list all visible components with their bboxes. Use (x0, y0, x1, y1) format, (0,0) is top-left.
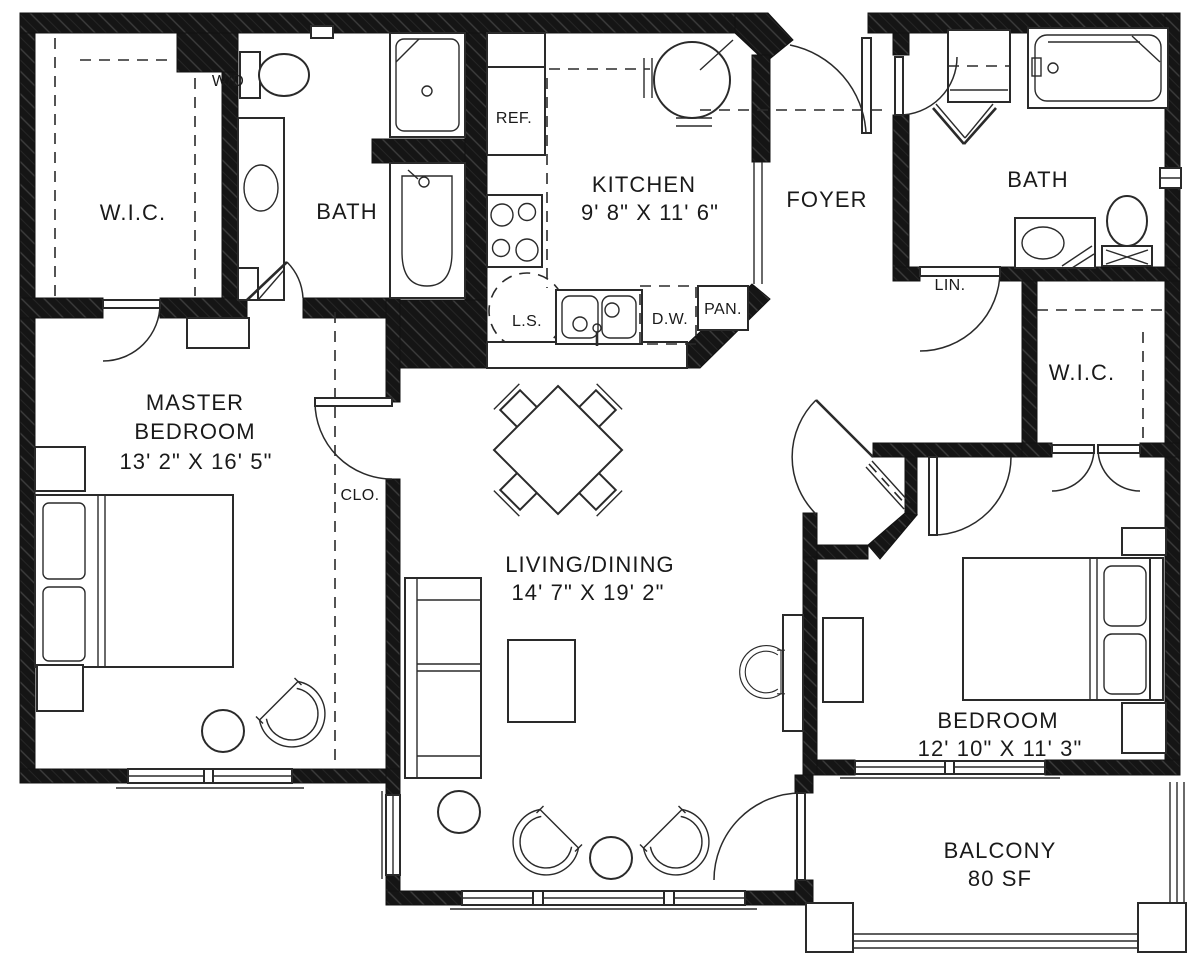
kitchen-counter-front (487, 342, 687, 368)
armchair (513, 806, 582, 875)
dining-set (494, 384, 622, 516)
washer-dryer-label: W/D (212, 73, 244, 90)
lazy-susan-circle (489, 273, 565, 349)
lazy-susan-label: L.S. (512, 313, 542, 330)
linen-label: LIN. (935, 277, 966, 294)
bedroom-dimensions: 12' 10" X 11' 3" (918, 736, 1083, 761)
armchair (256, 678, 325, 747)
sofa (405, 578, 481, 778)
accent-table (438, 791, 480, 833)
accent-table (590, 837, 632, 879)
master-bedroom-label-line2: BEDROOM (134, 419, 255, 444)
bedroom-label: BEDROOM (937, 708, 1058, 733)
living-side-window (382, 791, 400, 879)
dresser (187, 318, 249, 348)
nightstand (35, 447, 85, 491)
living-dining-furniture (405, 384, 807, 879)
balcony-pillar (806, 903, 853, 952)
floor-plan-page: W.I.C. BATH KITCHEN 9' 8" X 11' 6" FOYER… (0, 0, 1200, 965)
pantry-label: PAN. (704, 301, 742, 318)
wic-left-label: W.I.C. (100, 200, 167, 225)
bathtub-2 (1028, 28, 1168, 108)
nightstand (1122, 703, 1166, 753)
vanity-sink-2 (1015, 218, 1095, 268)
closet-label: CLO. (341, 487, 380, 504)
floor-plan-svg: W.I.C. BATH KITCHEN 9' 8" X 11' 6" FOYER… (0, 0, 1200, 965)
wic-left-door (103, 300, 160, 361)
coffee-table (508, 640, 575, 722)
refrigerator-label: REF. (496, 110, 532, 127)
master-bedroom-window (116, 769, 304, 788)
kitchen-dimensions: 9' 8" X 11' 6" (581, 200, 719, 225)
bath2-fixtures (933, 28, 1168, 268)
master-bedroom-furniture (35, 318, 325, 752)
dishwasher-label: D.W. (652, 311, 688, 328)
bath2-label: BATH (1007, 167, 1068, 192)
armchair (640, 806, 709, 875)
shower (390, 33, 465, 137)
master-bath-fixtures (238, 33, 465, 300)
bathtub (390, 163, 465, 298)
stove (487, 195, 542, 267)
bedroom-window (840, 761, 1060, 778)
console-table (783, 615, 803, 731)
toilet-2 (1102, 196, 1152, 266)
bath2-cabinet (948, 30, 1010, 102)
entry-door (790, 38, 871, 133)
living-dining-dimensions: 14' 7" X 19' 2" (511, 580, 664, 605)
master-bedroom-dimensions: 13' 2" X 16' 5" (119, 449, 272, 474)
balcony-door (714, 793, 805, 880)
master-bath-label: BATH (316, 199, 377, 224)
bedroom-door (929, 457, 1011, 535)
side-table (202, 710, 244, 752)
balcony-pillar (1138, 903, 1186, 952)
master-bedroom-door (315, 398, 392, 479)
wic-right-double-door (1052, 445, 1140, 491)
breakfast-table (644, 40, 733, 126)
nightstand (1122, 528, 1166, 555)
master-bedroom-label-line1: MASTER (146, 390, 244, 415)
master-bed (35, 495, 233, 667)
kitchen-counter-top (487, 33, 545, 67)
bed (963, 558, 1163, 700)
living-dining-label: LIVING/DINING (505, 552, 675, 577)
wic-right-label: W.I.C. (1049, 360, 1116, 385)
kitchen-sink (556, 290, 642, 346)
kitchen-label: KITCHEN (592, 172, 696, 197)
balcony-label: BALCONY (944, 838, 1057, 863)
living-bottom-window (450, 891, 757, 909)
dresser (823, 618, 863, 702)
bifold-door (933, 104, 996, 144)
nightstand (37, 665, 83, 711)
toilet (240, 52, 309, 98)
balcony-area: 80 SF (968, 866, 1032, 891)
foyer-label: FOYER (786, 187, 867, 212)
